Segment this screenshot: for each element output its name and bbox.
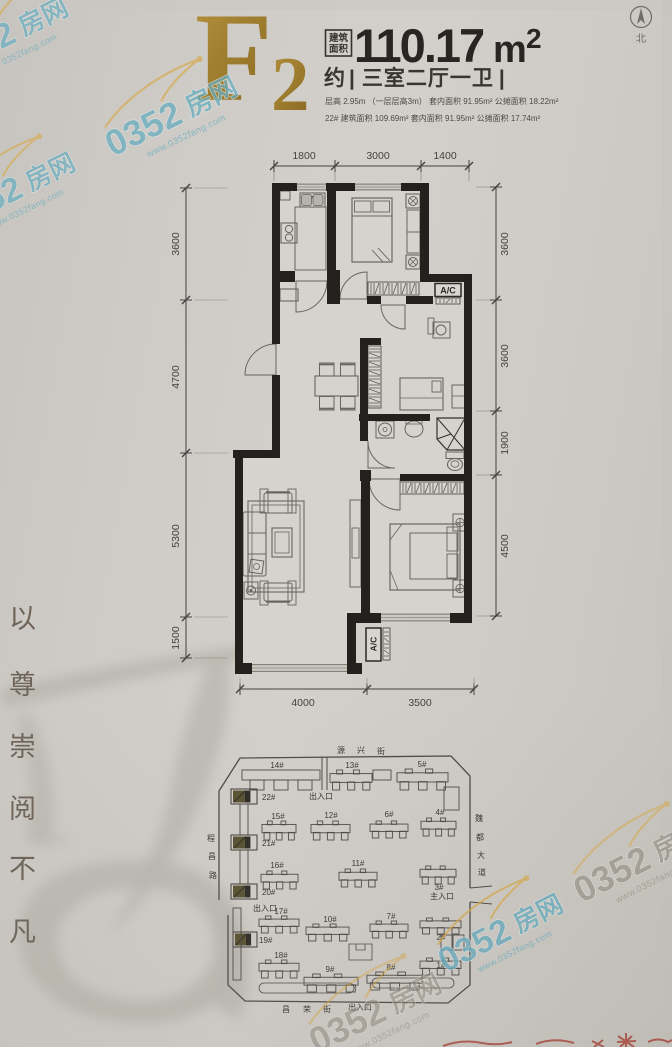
svg-text:A/C: A/C [369, 637, 379, 652]
svg-text:以: 以 [9, 604, 36, 634]
svg-text:m: m [493, 29, 527, 71]
svg-text:3600: 3600 [499, 344, 511, 368]
svg-text:22# 建筑面积 109.69m² 套内面积 91.95m²: 22# 建筑面积 109.69m² 套内面积 91.95m² 公摊面积 17.7… [325, 113, 541, 123]
svg-text:约|三室二厅一卫|: 约|三室二厅一卫| [324, 66, 506, 90]
svg-text:3600: 3600 [499, 232, 511, 256]
svg-text:5300: 5300 [170, 524, 182, 548]
svg-text:110.17: 110.17 [354, 19, 484, 72]
svg-text:0352: 0352 [98, 92, 188, 164]
svg-text:4700: 4700 [170, 365, 182, 389]
svg-text:3000: 3000 [366, 150, 390, 162]
svg-text:1400: 1400 [433, 150, 457, 162]
svg-text:2: 2 [526, 23, 542, 54]
svg-text:4500: 4500 [499, 534, 511, 558]
svg-text:2: 2 [271, 41, 310, 127]
svg-text:1800: 1800 [292, 150, 316, 162]
svg-text:尊: 尊 [9, 670, 36, 700]
svg-text:房网: 房网 [21, 148, 80, 197]
svg-text:A/C: A/C [440, 286, 456, 296]
svg-text:面积: 面积 [329, 43, 349, 55]
svg-text:层高 2.95m （一层层高3m） 套内面积 91.95m²: 层高 2.95m （一层层高3m） 套内面积 91.95m² 公摊面积 18.2… [325, 96, 559, 106]
svg-text:3600: 3600 [170, 232, 182, 256]
svg-text:建筑: 建筑 [328, 32, 349, 44]
svg-text:1900: 1900 [499, 431, 511, 455]
svg-text:北: 北 [636, 33, 646, 45]
svg-text:1500: 1500 [170, 626, 182, 650]
